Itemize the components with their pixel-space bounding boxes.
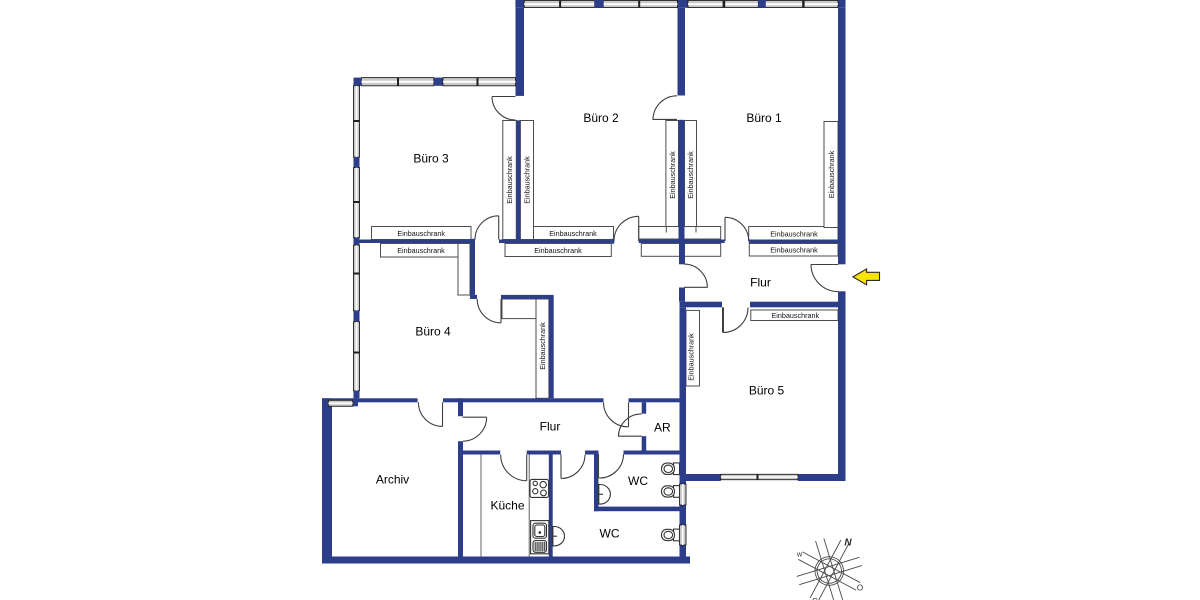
svg-text:Archiv: Archiv	[376, 472, 409, 486]
svg-text:Flur: Flur	[750, 276, 771, 290]
svg-text:Einbauschrank: Einbauschrank	[770, 229, 818, 238]
svg-text:S: S	[812, 597, 818, 600]
svg-text:Büro 4: Büro 4	[415, 325, 451, 339]
svg-text:Einbauschrank: Einbauschrank	[772, 311, 820, 320]
svg-text:Einbauschrank: Einbauschrank	[770, 245, 818, 254]
svg-text:WC: WC	[628, 474, 648, 488]
svg-text:Flur: Flur	[540, 420, 561, 434]
svg-text:O: O	[857, 584, 863, 593]
svg-text:WC: WC	[600, 526, 620, 540]
svg-text:Einbauschrank: Einbauschrank	[827, 150, 836, 198]
svg-text:Einbauschrank: Einbauschrank	[397, 246, 445, 255]
svg-text:Einbauschrank: Einbauschrank	[534, 246, 582, 255]
svg-text:Büro 2: Büro 2	[583, 111, 619, 125]
svg-text:Büro 1: Büro 1	[746, 111, 782, 125]
svg-text:Einbauschrank: Einbauschrank	[397, 229, 445, 238]
svg-text:Einbauschrank: Einbauschrank	[523, 156, 532, 204]
svg-text:Küche: Küche	[490, 498, 524, 512]
svg-text:Einbauschrank: Einbauschrank	[505, 156, 514, 204]
svg-text:Einbauschrank: Einbauschrank	[538, 322, 547, 370]
svg-text:Einbauschrank: Einbauschrank	[668, 151, 677, 199]
svg-text:Einbauschrank: Einbauschrank	[686, 151, 695, 199]
svg-text:N: N	[844, 538, 852, 549]
svg-text:w: w	[796, 552, 803, 559]
svg-text:Einbauschrank: Einbauschrank	[686, 333, 695, 381]
svg-text:AR: AR	[654, 420, 671, 434]
svg-text:Büro 5: Büro 5	[749, 383, 785, 397]
svg-text:Einbauschrank: Einbauschrank	[549, 229, 597, 238]
svg-text:Büro 3: Büro 3	[413, 152, 449, 166]
